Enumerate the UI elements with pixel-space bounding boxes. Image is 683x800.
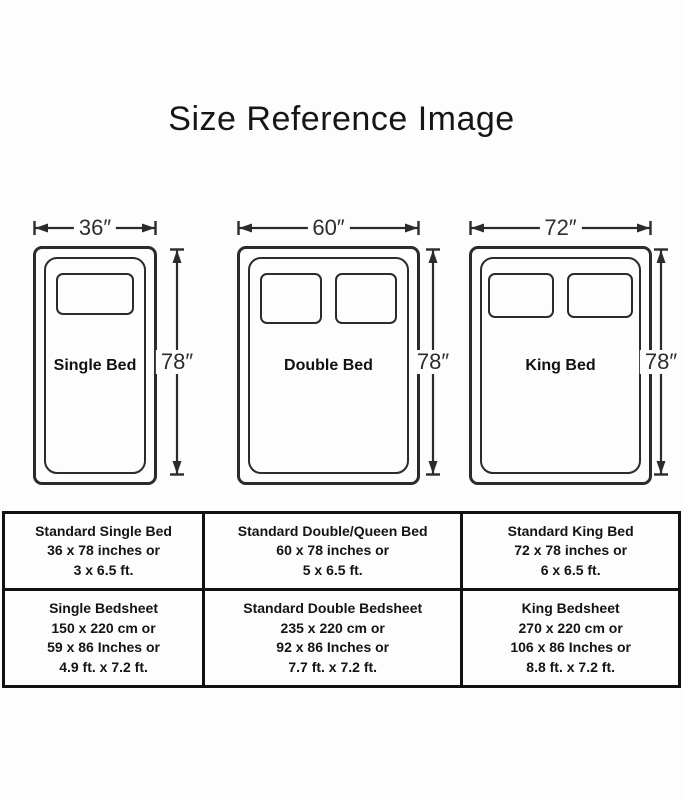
double-bed-outline: Double Bed <box>237 246 420 485</box>
pillow-icon <box>567 273 633 318</box>
single-bed-height-arrow: 78″ <box>169 248 185 476</box>
cell-single-bedsheet: Single Bedsheet 150 x 220 cm or 59 x 86 … <box>4 590 204 687</box>
king-bed-height-label: 78″ <box>640 350 682 374</box>
double-bed-pillows <box>250 259 407 324</box>
pillow-icon <box>335 273 397 324</box>
cell-line: King Bedsheet <box>463 599 678 619</box>
cell-line: 150 x 220 cm or <box>5 619 202 639</box>
cell-line: Standard Double/Queen Bed <box>205 522 460 542</box>
pillow-icon <box>56 273 134 315</box>
cell-line: 36 x 78 inches or <box>5 541 202 561</box>
king-bed-outline: King Bed <box>469 246 652 485</box>
king-bed-name-label: King Bed <box>472 357 649 375</box>
king-bed-width-label: 72″ <box>539 216 581 240</box>
king-bed-width-arrow: 72″ <box>469 220 652 236</box>
cell-line: 8.8 ft. x 7.2 ft. <box>463 658 678 678</box>
pillow-icon <box>488 273 554 318</box>
size-reference-page: Size Reference Image 36″ Single Bed 78″ <box>0 0 683 800</box>
cell-line: 7.7 ft. x 7.2 ft. <box>205 658 460 678</box>
double-bed-width-arrow: 60″ <box>237 220 420 236</box>
page-title: Size Reference Image <box>0 100 683 139</box>
single-bed-width-arrow: 36″ <box>33 220 157 236</box>
cell-line: 92 x 86 Inches or <box>205 638 460 658</box>
double-bed-name-label: Double Bed <box>240 357 417 375</box>
cell-line: 5 x 6.5 ft. <box>205 561 460 581</box>
single-bed-height-label: 78″ <box>156 350 198 374</box>
cell-line: Standard Double Bedsheet <box>205 599 460 619</box>
cell-line: Standard King Bed <box>463 522 678 542</box>
cell-line: Standard Single Bed <box>5 522 202 542</box>
cell-line: 4.9 ft. x 7.2 ft. <box>5 658 202 678</box>
table-row-bed-sizes: Standard Single Bed 36 x 78 inches or 3 … <box>4 513 680 590</box>
cell-line: 72 x 78 inches or <box>463 541 678 561</box>
cell-line: 106 x 86 Inches or <box>463 638 678 658</box>
double-bed-height-arrow: 78″ <box>425 248 441 476</box>
king-bed-pillows <box>482 259 639 318</box>
pillow-icon <box>260 273 322 324</box>
single-bed-outline: Single Bed <box>33 246 157 485</box>
cell-standard-double-queen-bed: Standard Double/Queen Bed 60 x 78 inches… <box>204 513 462 590</box>
double-bed-height-label: 78″ <box>412 350 454 374</box>
king-bed-height-arrow: 78″ <box>653 248 669 476</box>
cell-line: 3 x 6.5 ft. <box>5 561 202 581</box>
cell-line: Single Bedsheet <box>5 599 202 619</box>
cell-line: 235 x 220 cm or <box>205 619 460 639</box>
cell-line: 60 x 78 inches or <box>205 541 460 561</box>
cell-standard-double-bedsheet: Standard Double Bedsheet 235 x 220 cm or… <box>204 590 462 687</box>
cell-standard-king-bed: Standard King Bed 72 x 78 inches or 6 x … <box>462 513 680 590</box>
single-bed-width-label: 36″ <box>74 216 116 240</box>
cell-line: 6 x 6.5 ft. <box>463 561 678 581</box>
cell-line: 59 x 86 Inches or <box>5 638 202 658</box>
single-bed-name-label: Single Bed <box>36 357 154 375</box>
size-table: Standard Single Bed 36 x 78 inches or 3 … <box>2 511 681 688</box>
cell-line: 270 x 220 cm or <box>463 619 678 639</box>
cell-standard-single-bed: Standard Single Bed 36 x 78 inches or 3 … <box>4 513 204 590</box>
single-bed-pillows <box>46 259 144 315</box>
table-row-bedsheet-sizes: Single Bedsheet 150 x 220 cm or 59 x 86 … <box>4 590 680 687</box>
cell-king-bedsheet: King Bedsheet 270 x 220 cm or 106 x 86 I… <box>462 590 680 687</box>
double-bed-width-label: 60″ <box>307 216 349 240</box>
